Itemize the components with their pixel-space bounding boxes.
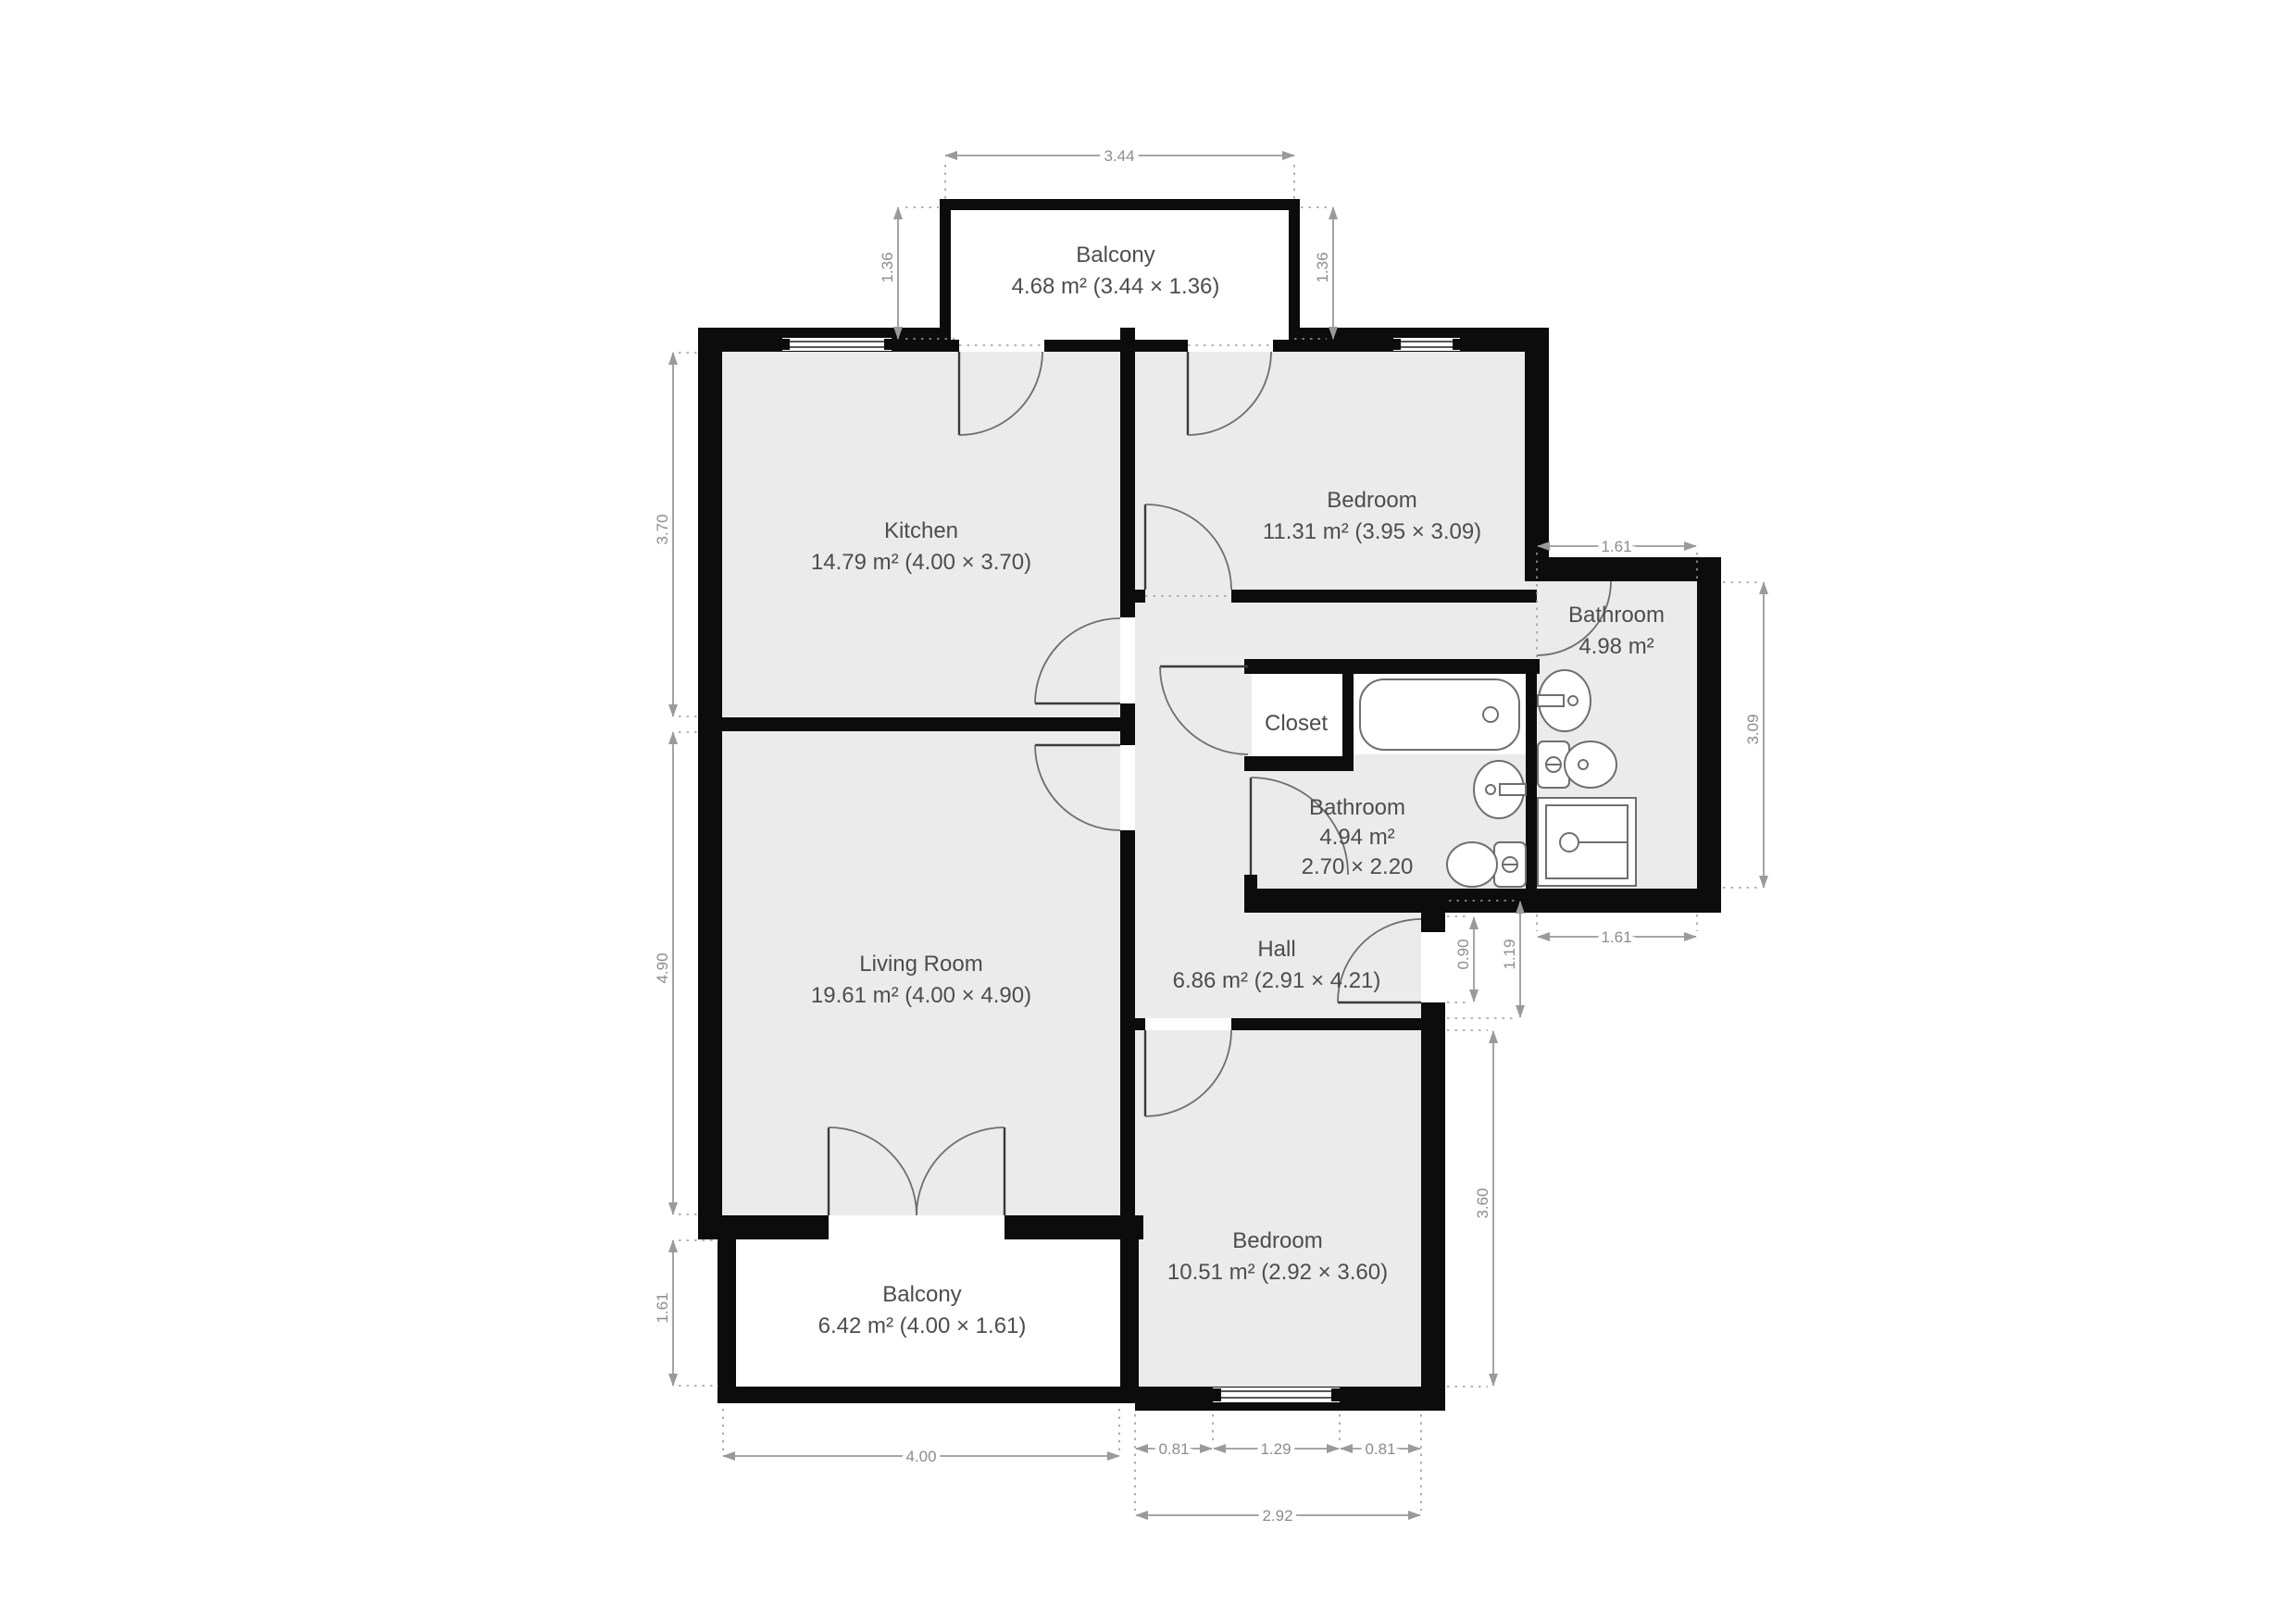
svg-text:3.60: 3.60 (1474, 1188, 1491, 1218)
svg-text:0.81: 0.81 (1158, 1440, 1189, 1458)
bathroom-mid-door-stub (1244, 875, 1257, 893)
dim-balcony-top-width: 3.44 (945, 147, 1294, 202)
bathtub (1360, 679, 1519, 750)
shower (1538, 798, 1636, 886)
svg-text:Hall: Hall (1257, 937, 1295, 962)
entry-stub-bottom (1421, 1002, 1445, 1030)
entry-door-recess (1421, 932, 1445, 1002)
bedroom-top-window (1393, 338, 1460, 351)
dim-bedroom-bottom-depth: 3.60 (1447, 1030, 1493, 1387)
bathroom-right-right-wall (1697, 557, 1721, 913)
bedroom-top-bottom-wall (1231, 590, 1537, 603)
bedroom-top-door-stub (1135, 590, 1145, 603)
dim-bathroom-right-depth: 3.09 (1723, 582, 1764, 888)
balcony-bottom-wall-left (717, 1239, 736, 1387)
svg-text:6.86 m² (2.91 × 4.21): 6.86 m² (2.91 × 4.21) (1173, 968, 1381, 993)
center-wall-upper (1120, 328, 1135, 617)
bedroom-bottom-floor (1135, 1030, 1421, 1387)
balcony-top-wall-left (940, 199, 951, 342)
dim-balcony-bottom-width: 4.00 (723, 1409, 1119, 1465)
svg-text:0.90: 0.90 (1454, 939, 1472, 969)
svg-text:Kitchen: Kitchen (884, 518, 958, 543)
dim-entry-opening: 0.90 (1447, 916, 1474, 1002)
svg-text:Closet: Closet (1265, 711, 1328, 736)
svg-text:2.70 × 2.20: 2.70 × 2.20 (1302, 854, 1414, 879)
entry-stub-top (1421, 913, 1445, 932)
svg-text:4.00: 4.00 (905, 1448, 936, 1465)
balcony-top-wall-right (1289, 199, 1300, 342)
center-wall-mid (1120, 703, 1135, 745)
svg-text:Bedroom: Bedroom (1232, 1228, 1322, 1253)
svg-text:3.09: 3.09 (1744, 714, 1762, 744)
svg-text:10.51 m² (2.92 × 3.60): 10.51 m² (2.92 × 3.60) (1167, 1260, 1388, 1285)
svg-text:1.36: 1.36 (1314, 252, 1331, 282)
exterior-wall-left (698, 328, 722, 1239)
balcony-bottom-wall-right (1120, 1239, 1139, 1403)
hall-bedroom-divider-wall (1231, 1018, 1421, 1030)
svg-text:1.19: 1.19 (1501, 939, 1518, 969)
svg-text:11.31 m² (3.95 × 3.09): 11.31 m² (3.95 × 3.09) (1263, 519, 1481, 544)
dim-bedroom-bottom-width: 2.92 (1136, 1507, 1420, 1525)
svg-text:14.79 m² (4.00 × 3.70): 14.79 m² (4.00 × 3.70) (811, 550, 1031, 575)
svg-text:1.61: 1.61 (1601, 928, 1631, 946)
dim-balcony-bottom-depth: 1.61 (654, 1240, 718, 1386)
toilet-right-bathroom (1538, 741, 1616, 788)
svg-text:1.36: 1.36 (879, 252, 896, 282)
svg-text:2.92: 2.92 (1262, 1507, 1292, 1525)
bedroom-bottom-right-wall (1421, 1030, 1445, 1411)
bathroom-mid-top-wall (1244, 659, 1540, 674)
closet-label: Closet (1265, 711, 1328, 736)
closet-bottom-wall (1244, 756, 1354, 771)
svg-text:3.70: 3.70 (654, 514, 671, 544)
svg-text:Living Room: Living Room (859, 952, 982, 977)
living-hall-door-gap (1120, 745, 1135, 830)
floorplan-drawing: 3.44 1.36 1.36 3.70 4.90 (0, 0, 2296, 1618)
bedroom-top-floor (1135, 352, 1525, 590)
svg-text:Balcony: Balcony (882, 1282, 961, 1307)
svg-text:Bathroom: Bathroom (1309, 795, 1405, 820)
svg-text:Bedroom: Bedroom (1327, 488, 1416, 513)
balcony-bottom-label: Balcony 6.42 m² (4.00 × 1.61) (818, 1282, 1027, 1338)
dim-bathroom-right-width-bottom: 1.61 (1537, 915, 1697, 946)
svg-text:1.29: 1.29 (1260, 1440, 1291, 1458)
french-door-gap (829, 1215, 1004, 1239)
svg-text:1.61: 1.61 (654, 1292, 671, 1323)
kitchen-window (782, 338, 892, 351)
kitchen-hall-door-gap (1120, 617, 1135, 703)
dim-balcony-top-depth-right: 1.36 (1294, 207, 1333, 339)
balcony-top-wall-top (940, 199, 1300, 210)
bathroom-right-top-wall (1525, 557, 1721, 581)
sink-right-bathroom (1538, 670, 1591, 731)
hall-mid-floor (1135, 659, 1244, 1018)
kitchen-living-divider-wall (698, 717, 1120, 731)
dim-bedroom-bottom-segments: 0.81 1.29 0.81 (1135, 1414, 1421, 1511)
bedroom-bottom-window (1213, 1388, 1340, 1402)
svg-text:Balcony: Balcony (1076, 243, 1154, 268)
dim-living-depth: 4.90 (654, 732, 700, 1214)
dim-kitchen-depth: 3.70 (654, 353, 700, 716)
svg-text:1.61: 1.61 (1601, 538, 1631, 555)
svg-text:4.68 m² (3.44 × 1.36): 4.68 m² (3.44 × 1.36) (1012, 274, 1220, 299)
svg-text:Bathroom: Bathroom (1568, 603, 1665, 628)
svg-text:4.98 m²: 4.98 m² (1578, 634, 1653, 659)
svg-text:3.44: 3.44 (1104, 147, 1134, 165)
center-wall-lower (1120, 830, 1135, 1239)
bathrooms-divider-wall (1526, 659, 1537, 889)
floorplan-canvas: 3.44 1.36 1.36 3.70 4.90 (0, 0, 2296, 1618)
bedroom-top-right-wall (1525, 328, 1549, 581)
svg-text:4.94 m²: 4.94 m² (1319, 825, 1394, 850)
svg-text:0.81: 0.81 (1365, 1440, 1395, 1458)
hall-bedroom-door-stub (1135, 1018, 1145, 1030)
svg-text:4.90: 4.90 (654, 952, 671, 983)
svg-text:6.42 m² (4.00 × 1.61): 6.42 m² (4.00 × 1.61) (818, 1313, 1027, 1338)
svg-text:19.61 m² (4.00 × 4.90): 19.61 m² (4.00 × 4.90) (811, 983, 1031, 1008)
balcony-bottom-wall-bottom (717, 1387, 1139, 1403)
toilet-mid-bathroom (1447, 842, 1526, 887)
